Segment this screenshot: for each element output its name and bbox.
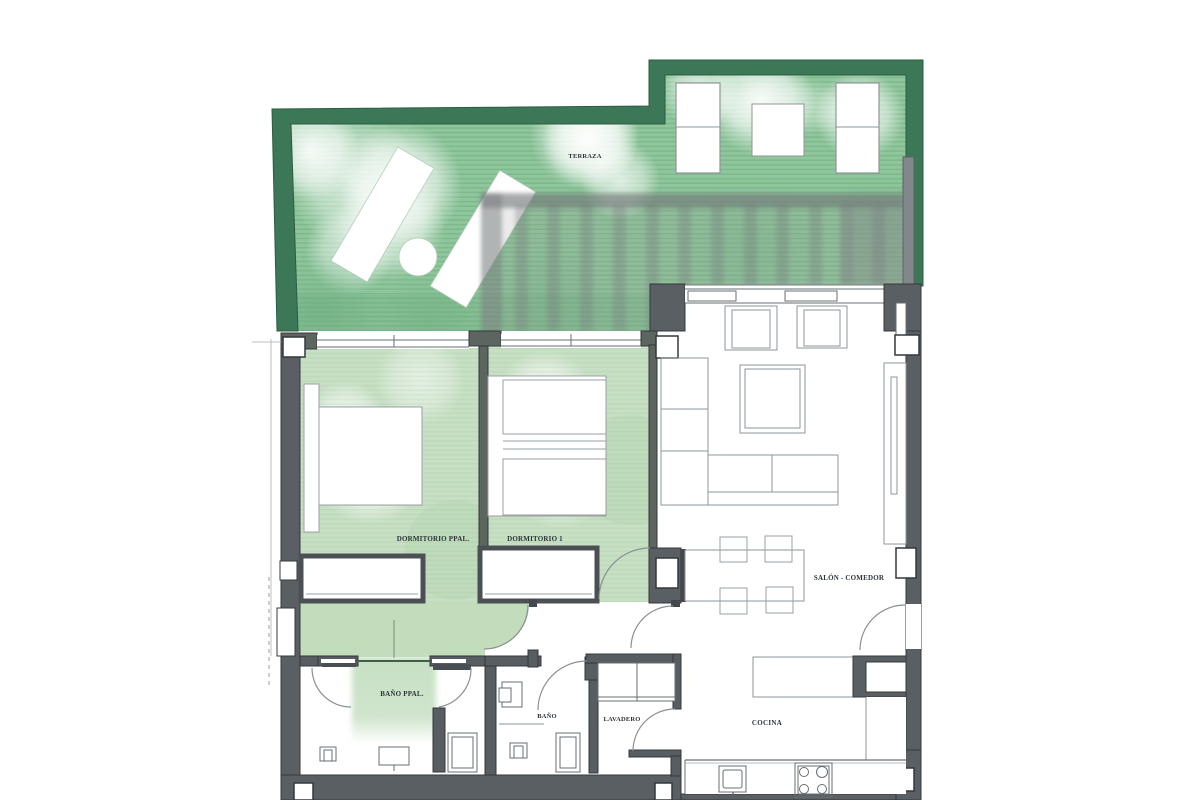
- svg-text:DORMITORIO PPAL.: DORMITORIO PPAL.: [397, 535, 470, 543]
- svg-text:DORMITORIO 1: DORMITORIO 1: [507, 535, 563, 543]
- svg-text:BAÑO PPAL.: BAÑO PPAL.: [380, 690, 424, 698]
- svg-text:BAÑO: BAÑO: [537, 712, 557, 720]
- svg-text:COCINA: COCINA: [752, 719, 782, 727]
- svg-text:TERRAZA: TERRAZA: [568, 153, 601, 160]
- svg-text:LAVADERO: LAVADERO: [603, 716, 640, 723]
- svg-text:SALÓN - COMEDOR: SALÓN - COMEDOR: [814, 574, 885, 582]
